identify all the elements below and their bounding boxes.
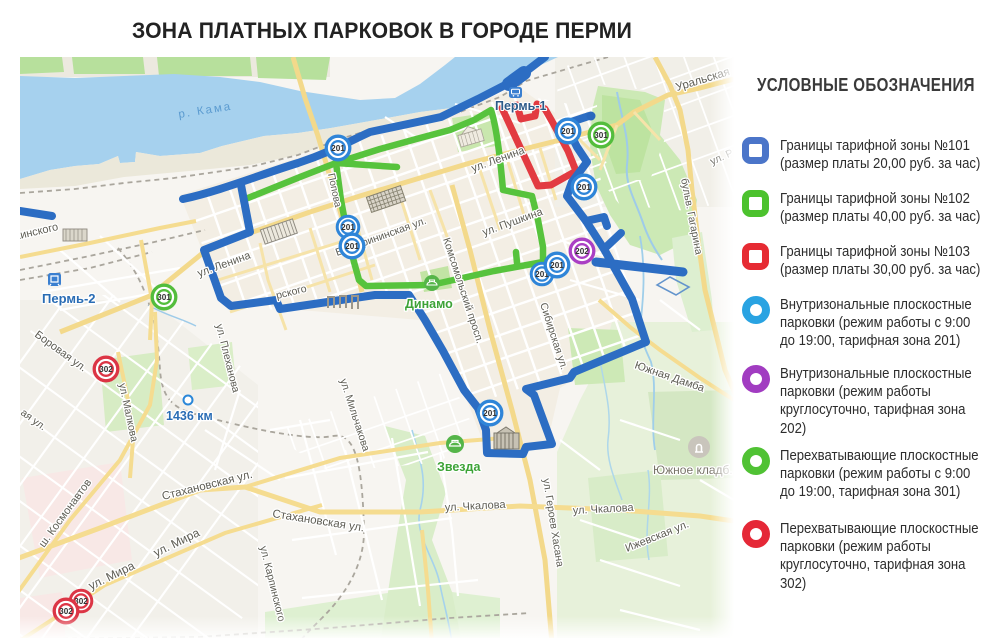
svg-text:201: 201 [345, 242, 359, 251]
svg-text:202: 202 [575, 247, 589, 256]
svg-text:201: 201 [550, 261, 564, 270]
svg-text:1436 км: 1436 км [166, 409, 213, 423]
svg-text:302: 302 [99, 365, 113, 374]
svg-text:201: 201 [577, 183, 591, 192]
svg-text:Динамо: Динамо [405, 297, 453, 311]
svg-text:301: 301 [594, 131, 608, 140]
svg-text:Пермь-1: Пермь-1 [495, 99, 547, 113]
svg-text:302: 302 [59, 607, 73, 616]
svg-text:301: 301 [157, 293, 171, 302]
svg-text:Звезда: Звезда [437, 460, 481, 474]
svg-text:201: 201 [561, 127, 575, 136]
svg-text:201: 201 [483, 409, 497, 418]
svg-text:Пермь-2: Пермь-2 [42, 291, 96, 306]
svg-text:201: 201 [331, 144, 345, 153]
svg-text:201: 201 [341, 223, 355, 232]
